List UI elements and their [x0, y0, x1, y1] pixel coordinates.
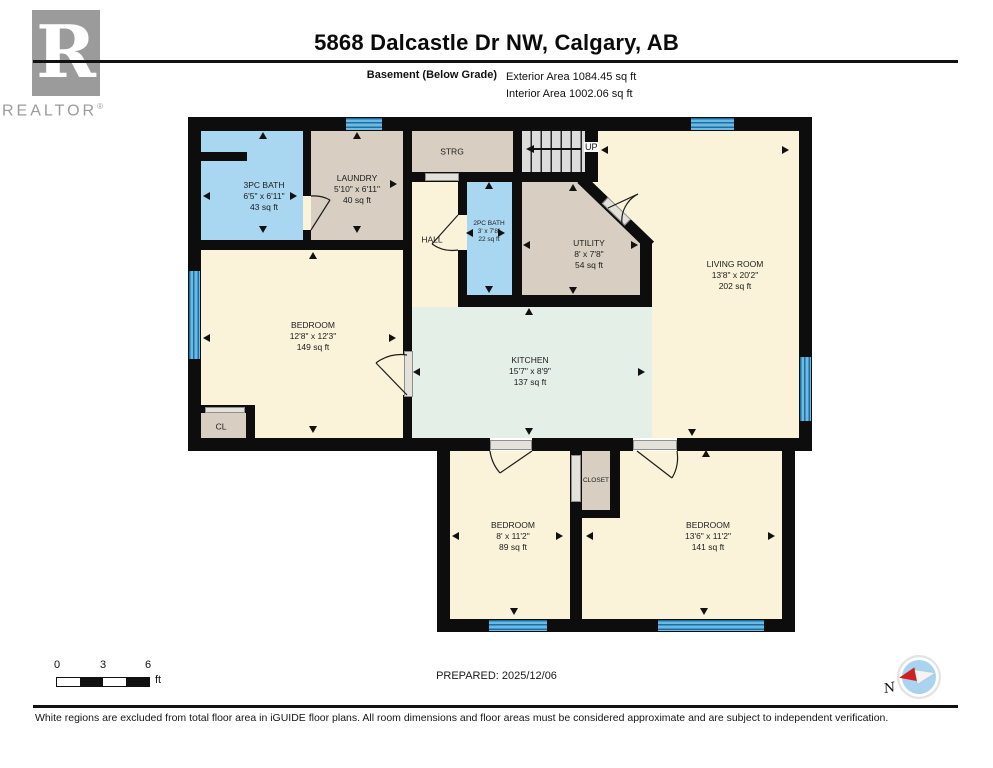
room-label-2pc-bath: 2PC BATH3' x 7'8"22 sq ft: [473, 220, 504, 244]
room-label-bedroom-mid: BEDROOM8' x 11'2"89 sq ft: [491, 520, 535, 554]
wall: [201, 152, 247, 161]
room-label-laundry: LAUNDRY5'10" x 6'11"40 sq ft: [334, 173, 380, 207]
door-swing: [424, 211, 464, 255]
dim-arrow: [485, 286, 493, 293]
room-label-kitchen: KITCHEN15'7" x 8'9"137 sq ft: [509, 355, 551, 389]
dim-arrow: [259, 132, 267, 139]
dim-arrow: [259, 226, 267, 233]
door-swing: [630, 443, 682, 485]
interior-area: Interior Area 1002.06 sq ft: [506, 86, 636, 103]
header-rule: [33, 60, 958, 63]
door-swing: [487, 443, 535, 483]
room-label-cl: CL: [216, 421, 227, 432]
dim-arrow: [688, 429, 696, 436]
wall: [188, 240, 412, 250]
dim-arrow: [389, 334, 396, 342]
dim-arrow: [525, 428, 533, 435]
window: [345, 117, 383, 131]
dim-arrow: [353, 132, 361, 139]
dim-arrow: [452, 532, 459, 540]
dim-arrow: [569, 287, 577, 294]
dim-arrow: [523, 241, 530, 249]
wall: [512, 182, 522, 305]
room-label-bedroom-right: BEDROOM13'6" x 11'2"141 sq ft: [685, 520, 731, 554]
dim-arrow: [510, 608, 518, 615]
disclaimer-text: White regions are excluded from total fl…: [35, 712, 958, 724]
wall: [403, 395, 412, 438]
dim-arrow: [485, 182, 493, 189]
dim-arrow: [586, 532, 593, 540]
stairs-up-arrowhead: [526, 145, 534, 153]
dim-arrow: [631, 241, 638, 249]
window: [690, 117, 735, 131]
wall: [458, 295, 652, 307]
dim-arrow: [525, 308, 533, 315]
room-label-strg: STRG: [440, 146, 464, 157]
window: [188, 270, 201, 360]
wall: [610, 445, 620, 518]
dim-arrow: [782, 146, 789, 154]
dim-arrow: [353, 226, 361, 233]
wall: [437, 445, 450, 632]
dim-arrow: [203, 334, 210, 342]
wall: [582, 510, 620, 518]
area-summary: Exterior Area 1084.45 sq ft Interior Are…: [506, 69, 636, 103]
dim-arrow: [556, 532, 563, 540]
stairs-up-label: UP: [584, 142, 599, 152]
dim-arrow: [768, 532, 775, 540]
door-slab: [571, 455, 581, 502]
dim-arrow: [601, 146, 608, 154]
wall: [403, 250, 412, 355]
wall: [403, 131, 412, 248]
stairs-up-arrow: [534, 148, 581, 150]
floor-plan-sheet: { "header": { "brand": "REALTOR", "brand…: [0, 0, 993, 768]
room-label-bedroom-left: BEDROOM12'8" x 12'3"149 sq ft: [290, 320, 337, 354]
wall: [513, 117, 522, 172]
window: [488, 619, 548, 632]
exterior-area: Exterior Area 1084.45 sq ft: [506, 69, 636, 86]
dim-arrow: [203, 192, 210, 200]
compass-north-label: N: [883, 680, 897, 697]
page-title: 5868 Dalcastle Dr NW, Calgary, AB: [0, 30, 993, 56]
room-label-3pc-bath: 3PC BATH6'5" x 6'11"43 sq ft: [243, 180, 284, 214]
dim-arrow: [413, 368, 420, 376]
window: [657, 619, 765, 632]
wall: [303, 131, 311, 196]
dim-arrow: [700, 608, 708, 615]
wall: [246, 405, 255, 440]
dim-arrow: [309, 426, 317, 433]
prepared-date: PREPARED: 2025/12/06: [0, 670, 993, 682]
wall: [782, 445, 795, 632]
floor-label: Basement (Below Grade): [0, 69, 497, 81]
door-swing: [598, 186, 646, 232]
door-slab: [205, 407, 245, 413]
door-slab: [425, 173, 459, 181]
room-label-utility: UTILITY8' x 7'8"54 sq ft: [573, 238, 605, 272]
dim-arrow: [569, 184, 577, 191]
registered-mark: ®: [97, 102, 103, 111]
window: [799, 356, 812, 422]
dim-arrow: [390, 180, 397, 188]
dim-arrow: [638, 368, 645, 376]
realtor-logo-text: REALTOR®: [2, 102, 130, 120]
footer-rule: [33, 705, 958, 708]
dim-arrow: [309, 252, 317, 259]
room-label-closet: CLOSET: [583, 477, 609, 485]
dim-arrow: [466, 229, 473, 237]
room-label-hall: HALL: [421, 234, 442, 245]
dim-arrow: [702, 450, 710, 457]
room-label-living-room: LIVING ROOM13'8" x 20'2"202 sq ft: [707, 259, 764, 293]
door-swing: [368, 348, 412, 400]
dim-arrow: [290, 192, 297, 200]
